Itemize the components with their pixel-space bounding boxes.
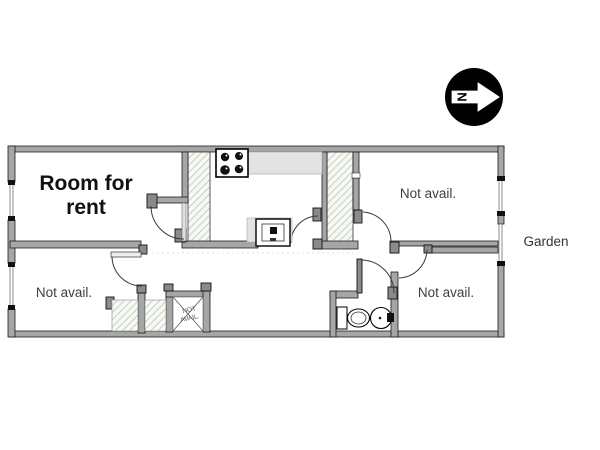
compass-icon: N — [445, 68, 503, 126]
top-right-room-label: Not avail. — [400, 186, 456, 201]
toilet-icon — [337, 307, 370, 329]
compass-north-label: N — [455, 92, 470, 101]
bottom-right-room-label: Not avail. — [418, 285, 474, 300]
room-for-rent-label-line2: rent — [66, 196, 106, 219]
kitchen — [216, 149, 322, 246]
bathroom-sink-icon — [371, 308, 395, 329]
closet-hatch-right — [145, 300, 166, 331]
room-for-rent-label-line1: Room for — [39, 172, 132, 195]
floor-plan: N — [0, 0, 600, 450]
closets: NOT AVAIL. — [112, 297, 203, 331]
kitchen-sink-icon — [256, 219, 290, 246]
labels: Room for rent Not avail. Not avail. Not … — [36, 172, 569, 300]
door-posts — [106, 194, 432, 309]
door-arc-top-right-room — [363, 212, 391, 243]
floor-plan-page: N — [0, 0, 600, 450]
closet-not-avail: NOT AVAIL. — [173, 297, 203, 331]
alcove-wall-line — [182, 203, 186, 241]
door-arc-bottom-left-room — [112, 256, 142, 286]
closet-hatch-left — [112, 300, 138, 331]
garden-label: Garden — [523, 234, 568, 249]
bathroom — [337, 307, 394, 329]
door-arc-bottom-right-room — [399, 250, 427, 278]
door-leaf-bottom-left-room — [111, 252, 141, 257]
counter-top — [248, 152, 322, 174]
wall-notch — [352, 173, 360, 178]
bottom-left-room-label: Not avail. — [36, 285, 92, 300]
stove-icon — [216, 149, 248, 177]
